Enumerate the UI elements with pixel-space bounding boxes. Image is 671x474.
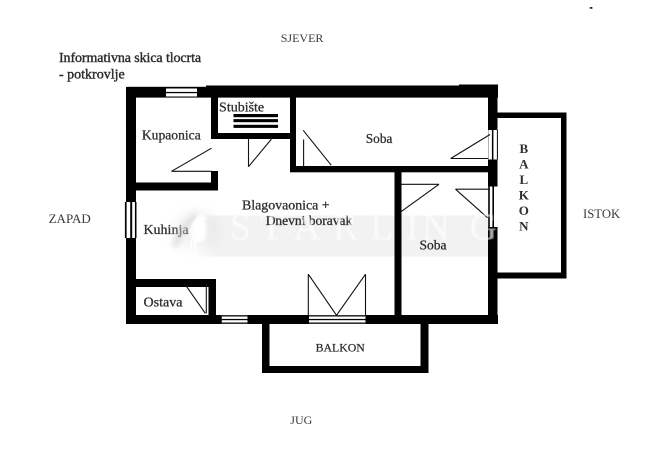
svg-text:Kupaonica: Kupaonica: [142, 128, 201, 143]
svg-text:N: N: [519, 219, 529, 234]
svg-text:G: G: [470, 207, 497, 249]
svg-text:Stubište: Stubište: [219, 101, 264, 116]
svg-text:T: T: [260, 207, 283, 249]
svg-text:I: I: [406, 207, 419, 249]
svg-text:K: K: [519, 188, 530, 203]
svg-text:ISTOK: ISTOK: [583, 207, 621, 221]
svg-text:BALKON: BALKON: [316, 341, 366, 355]
svg-text:ZAPAD: ZAPAD: [49, 211, 91, 226]
svg-text:S: S: [230, 207, 251, 249]
svg-text:Soba: Soba: [366, 131, 393, 146]
svg-text:L: L: [370, 207, 393, 249]
svg-text:Ostava: Ostava: [144, 296, 184, 311]
svg-text:Informativna skica tlocrta: Informativna skica tlocrta: [59, 51, 202, 66]
svg-text:- potkrovlje: - potkrovlje: [59, 67, 125, 82]
svg-text:JUG: JUG: [290, 413, 312, 427]
svg-text:N: N: [422, 207, 449, 249]
svg-text:SJEVER: SJEVER: [281, 31, 324, 45]
svg-text:O: O: [519, 203, 529, 218]
svg-text:B: B: [519, 141, 528, 156]
svg-text:L: L: [519, 172, 528, 187]
svg-text:A: A: [519, 157, 529, 172]
svg-text:A: A: [293, 207, 321, 249]
svg-text:R: R: [333, 207, 359, 249]
